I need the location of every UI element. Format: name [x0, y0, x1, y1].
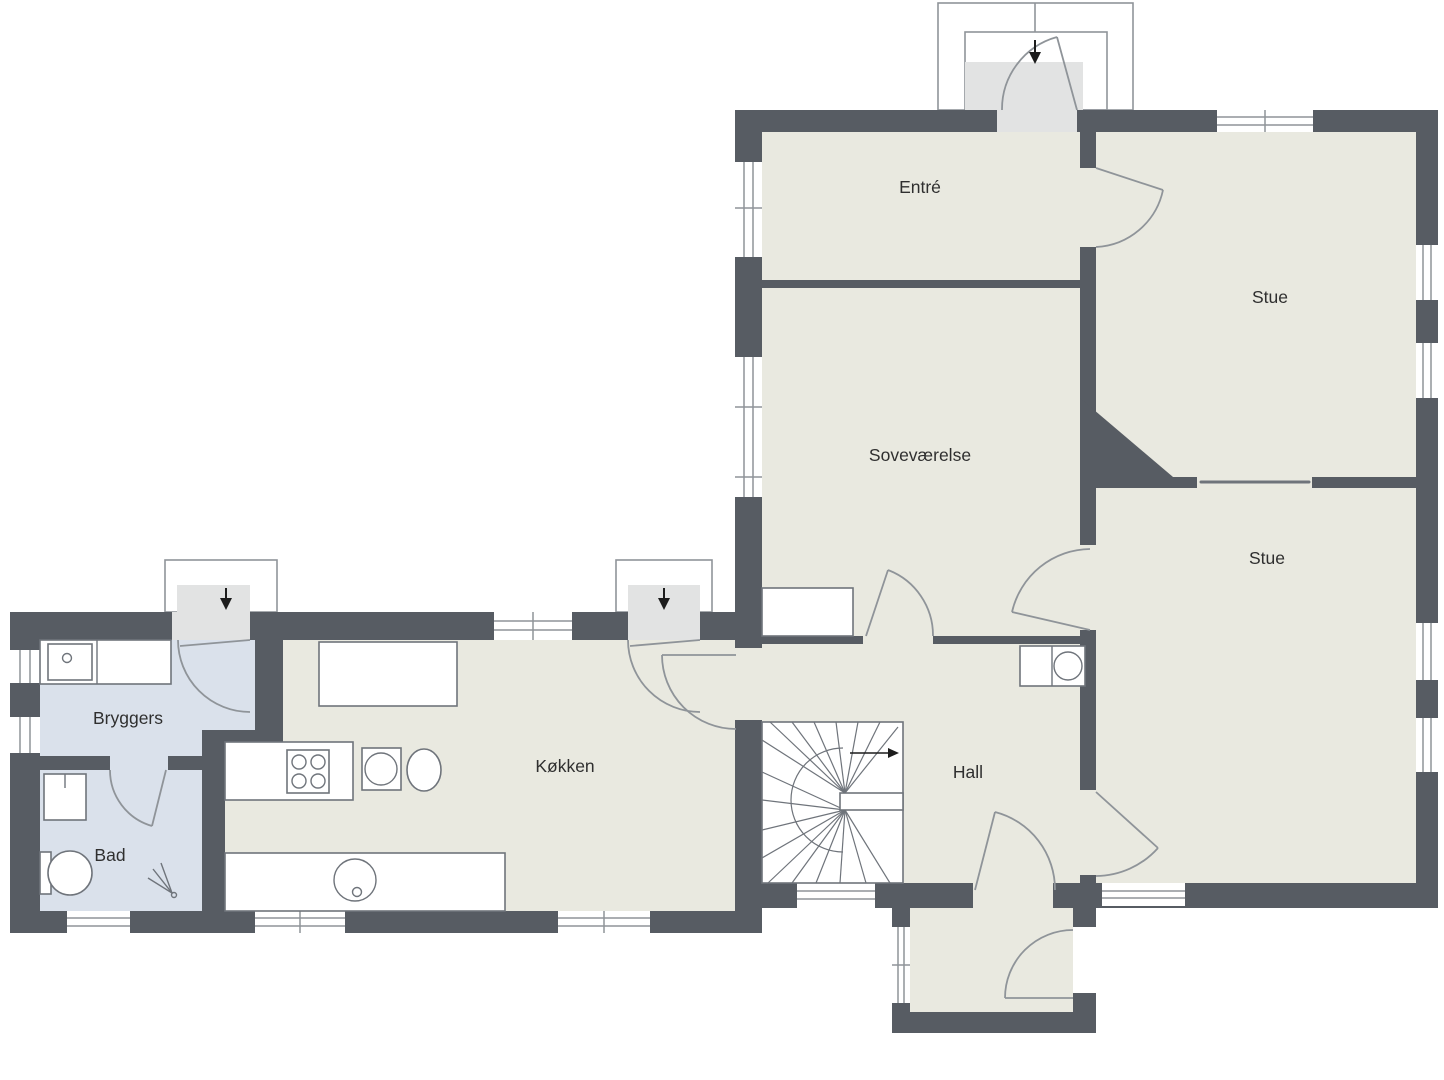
room-label-hall: Hall: [953, 762, 983, 782]
room-label-entre: Entré: [899, 177, 941, 197]
staircase: [762, 722, 903, 883]
bad-kitchen-wall: [202, 742, 225, 911]
entre-sovevaerelse-wall: [762, 280, 1080, 288]
bryggers-counter: [40, 640, 171, 684]
sovevaerelse-cabinet: [762, 588, 853, 636]
room-label-stue-lower: Stue: [1249, 548, 1285, 568]
hall-fixtures: [1020, 646, 1085, 686]
room-label-bryggers: Bryggers: [93, 708, 163, 728]
bryggers-bad-wall: [10, 756, 202, 770]
stue-divider-left: [1080, 477, 1197, 488]
toilet-bowl-symbol: [48, 851, 92, 895]
bryggers-kitchen-wall: [255, 640, 283, 742]
room-label-koekken: Køkken: [535, 756, 594, 776]
room-label-stue-upper: Stue: [1252, 287, 1288, 307]
basin-symbol: [407, 749, 441, 791]
bryggers-entrance-porch: [165, 560, 277, 612]
floor-plan-svg: Entré Stue Soveværelse Stue Hall Køkken …: [0, 0, 1444, 1080]
kitchen-sink-symbol: [362, 748, 401, 790]
floor-plan-page: Entré Stue Soveværelse Stue Hall Køkken …: [0, 0, 1444, 1080]
room-label-sovevaerelse: Soveværelse: [869, 445, 971, 465]
kitchen-top-counter: [319, 642, 457, 706]
stue-divider-right: [1312, 477, 1416, 488]
room-label-bad: Bad: [94, 845, 125, 865]
